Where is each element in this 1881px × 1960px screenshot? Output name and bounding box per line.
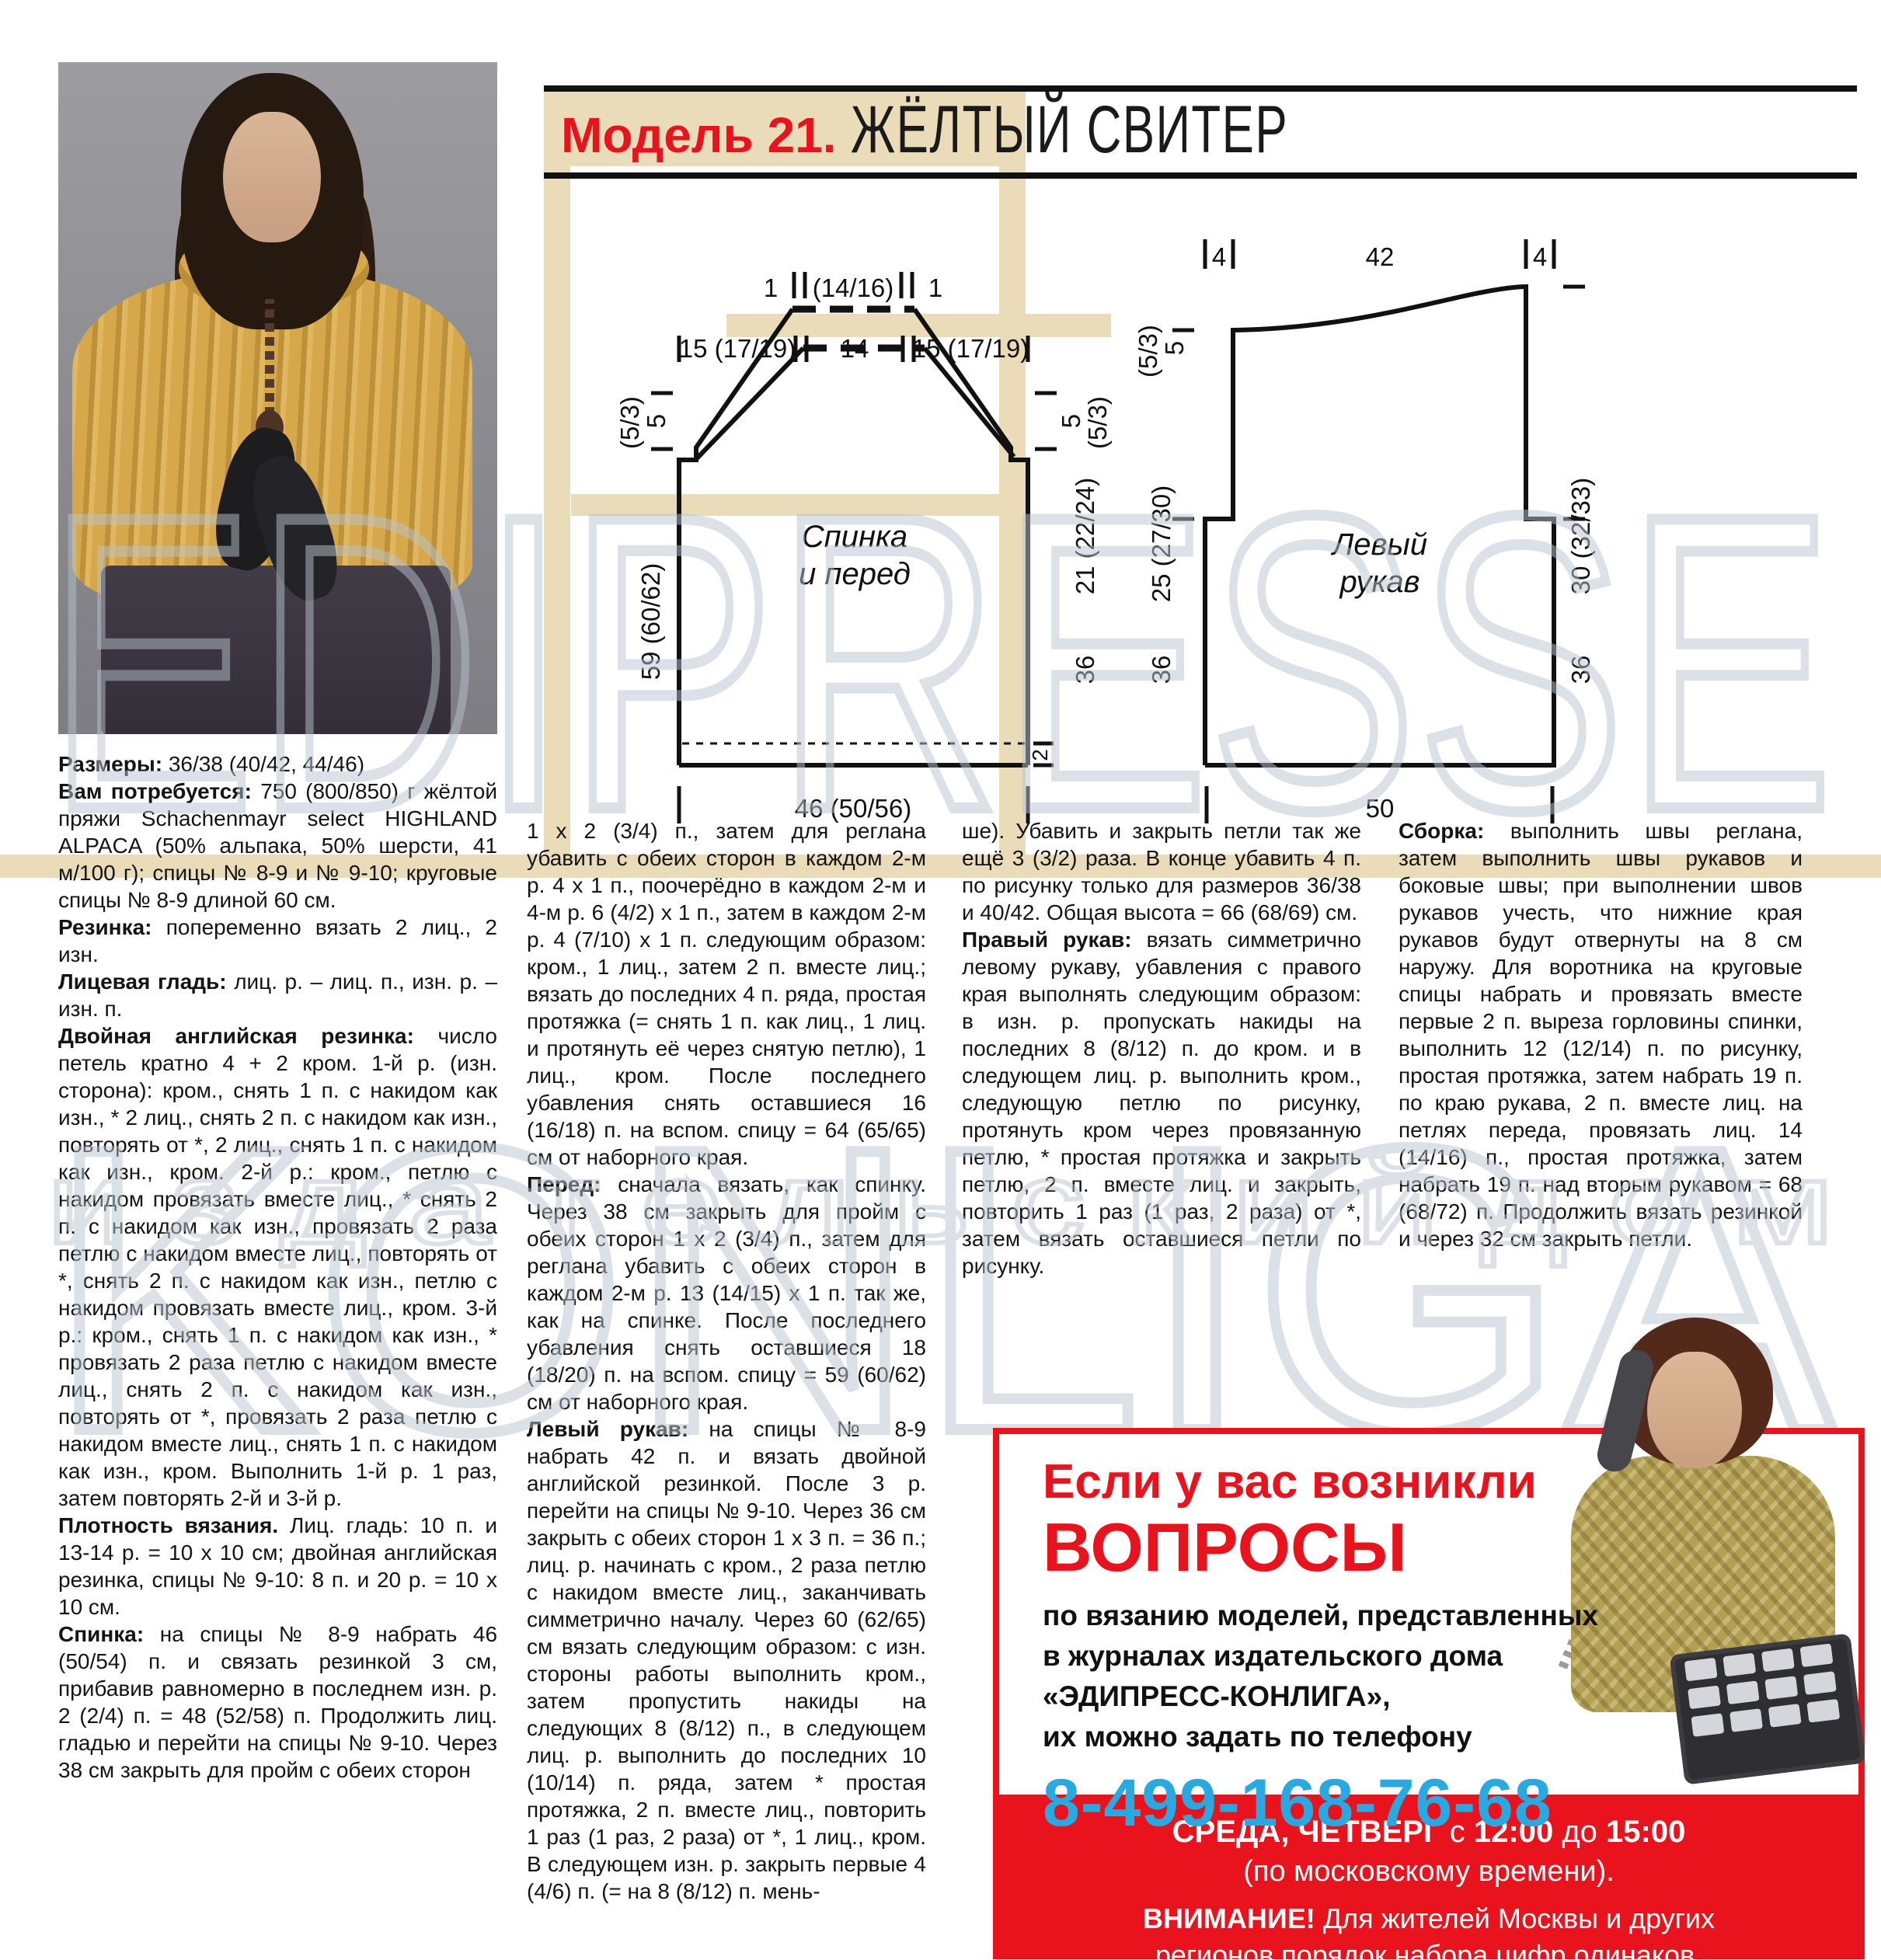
ad-body-line: «ЭДИПРЕСС-КОНЛИГА», [1043,1676,1649,1717]
ad-attention-rest: Для жителей Москвы и других [1315,1903,1715,1934]
paragraph-text: сначала вязать, как спинку. Через 38 см … [527,1172,926,1414]
paragraph: Сборка: выполнить швы реглана, затем вып… [1399,817,1803,1252]
ad-body: по вязанию моделей, представленных в жур… [1043,1596,1649,1757]
paragraph-lead: Размеры: [58,752,162,776]
sleeve-caption-2: рукав [1339,565,1420,599]
text-column-3: ше). Убавить и закрыть петли так же ещё … [962,817,1361,1392]
paragraph: Двойная английская резинка: число петель… [58,1022,497,1512]
telephone-key [1764,1676,1798,1700]
paragraph: 1 х 2 (3/4) п., затем для реглана убавит… [527,817,926,1171]
telephone-key [1729,1708,1763,1732]
hotline-ad: Если у вас возникли ВОПРОСЫ по вязанию м… [993,1428,1865,1959]
ad-attention-word: ВНИМАНИЕ! [1143,1903,1315,1934]
model-name: ЖЁЛТЫЙ СВИТЕР [851,96,1288,163]
back-right-raglan: 21 (22/24) [1071,478,1099,594]
paragraph-lead: Плотность вязания. [58,1513,278,1537]
paragraph-text: 1 х 2 (3/4) п., затем для реглана убавит… [527,819,926,1169]
paragraph-text: число петель кратно 4 + 2 кром. 1-й р. (… [58,1024,497,1510]
title-rule-bottom [544,172,1857,179]
paragraph: ше). Убавить и закрыть петли так же ещё … [962,817,1361,926]
telephone-key [1800,1643,1834,1667]
sleeve-right-cap: 30 (32/33) [1566,478,1595,594]
ad-woman-face [1647,1352,1742,1468]
back-top-neck: (14/16) [813,273,894,302]
back-right-body: 36 [1071,656,1099,684]
back-left-top-a: (5/3) [615,396,644,449]
page-title: Модель 21. ЖЁЛТЫЙ СВИТЕР [561,96,1458,169]
telephone-key [1726,1680,1760,1704]
paragraph-lead: Левый рукав: [527,1417,688,1441]
sleeve-caption-1: Левый [1330,527,1427,562]
paragraph: Спинка: на спицы № 8-9 набрать 46 (50/54… [58,1621,497,1784]
back-top-one-left: 1 [764,273,778,302]
telephone [1670,1633,1866,1784]
paragraph-lead: Резинка: [58,915,152,939]
beige-frame-left [544,92,570,861]
back-row-center: 14 [841,334,869,363]
telephone-key [1803,1671,1837,1695]
back-left-top-b: 5 [642,414,671,428]
sleeve-left-top-b: 5 [1160,341,1189,355]
model-photo [58,62,497,734]
paragraph-lead: Спинка: [58,1622,144,1646]
paragraph-lead: Вам потребуется: [58,779,252,803]
photo-skirt [101,566,451,734]
back-front-ticks [651,272,1057,823]
ad-attention-line: ВНИМАНИЕ! Для жителей Москвы и других [993,1900,1865,1937]
telephone-key [1684,1658,1718,1682]
back-right-top-a: 5 [1057,414,1085,428]
telephone-key [1691,1713,1724,1737]
telephone-key [1761,1648,1795,1673]
model-number: Модель 21. [561,102,837,169]
sleeve-left-body: 36 [1147,656,1176,684]
back-row-left: 15 (17/19) [679,334,796,363]
paragraph: Резинка: попеременно вязать 2 лиц., 2 из… [58,914,497,968]
back-left-height: 59 (60/62) [636,563,665,680]
beige-band-diagram-mid [571,494,1027,516]
telephone-key [1723,1653,1756,1677]
back-front-outline [679,309,1028,765]
ad-body-line: их можно задать по телефону [1043,1717,1649,1757]
sleeve-top-left: 4 [1212,242,1226,271]
ad-text-block: Если у вас возникли ВОПРОСЫ по вязанию м… [999,1434,1649,1842]
magazine-page: Модель 21. ЖЁЛТЫЙ СВИТЕР 1 [0,0,1881,1960]
paragraph: Правый рукав: вязать симметрично левому … [962,926,1361,1279]
sleeve-left-cap: 25 (27/30) [1147,486,1176,602]
sleeve-ticks [1172,239,1585,823]
paragraph: Лицевая гладь: лиц. р. – лиц. п., изн. р… [58,968,497,1022]
paragraph: Вам потребуется: 750 (800/850) г жёлтой … [58,778,497,914]
ad-body-line: по вязанию моделей, представленных [1043,1596,1649,1636]
paragraph-text: вязать симметрично левому рукаву, убавле… [962,928,1361,1278]
sleeve-top-center: 42 [1366,242,1395,271]
paragraph-lead: Сборка: [1399,819,1484,843]
ad-headline-1: Если у вас возникли [1043,1454,1649,1510]
sleeve-outline [1205,287,1554,765]
paragraph-text: на спицы № 8-9 набрать 42 п. и вязать дв… [527,1417,926,1903]
telephone-key [1806,1699,1840,1723]
paragraph-lead: Двойная английская резинка: [58,1024,414,1048]
sleeve-right-body: 36 [1566,656,1595,684]
sleeve-bottom-width: 50 [1366,794,1395,823]
paragraph-text: выполнить швы реглана, затем выполнить ш… [1399,819,1803,1251]
back-hem: 2 [1028,749,1052,761]
paragraph-lead: Правый рукав: [962,928,1132,952]
paragraph: Перед: сначала вязать, как спинку. Через… [527,1171,926,1415]
title-rule-top [544,85,1857,92]
ad-headline-2: ВОПРОСЫ [1043,1510,1649,1585]
paragraph: Размеры: 36/38 (40/42, 44/46) [58,750,497,778]
paragraph-text: 36/38 (40/42, 44/46) [169,752,364,776]
beige-band-diagram-top [726,314,1111,337]
paragraph-lead: Перед: [527,1172,601,1196]
telephone-key [1688,1685,1721,1709]
back-top-one-right: 1 [928,273,942,302]
beige-frame-right [999,92,1026,861]
photo-necklace [265,299,274,416]
text-column-2: 1 х 2 (3/4) п., затем для реглана убавит… [527,817,926,1955]
photo-face [223,112,321,242]
paragraph: Плотность вязания. Лиц. гладь: 10 п. и 1… [58,1512,497,1621]
sleeve-top-right: 4 [1533,242,1547,271]
ad-timezone-line: (по московскому времени). [993,1852,1865,1891]
hotline-phone-number: 8-499-168-76-68 [1043,1765,1649,1842]
back-caption-1: Спинка [802,520,907,554]
telephone-key [1768,1704,1802,1728]
back-right-top-b: (5/3) [1083,396,1112,449]
back-caption-2: и перед [799,557,911,591]
ad-attention-line-2: регионов порядок набора цифр одинаков. [993,1937,1865,1960]
paragraph-lead: Лицевая гладь: [58,970,227,994]
text-column-4: Сборка: выполнить швы реглана, затем вып… [1399,817,1803,1392]
sleeve-left-top-a: (5/3) [1134,325,1162,378]
ad-body-line: в журналах издательского дома [1043,1636,1649,1676]
paragraph: Левый рукав: на спицы № 8-9 набрать 42 п… [527,1415,926,1905]
paragraph-text: ше). Убавить и закрыть петли так же ещё … [962,819,1361,924]
text-column-1: Размеры: 36/38 (40/42, 44/46) Вам потреб… [58,750,497,1955]
